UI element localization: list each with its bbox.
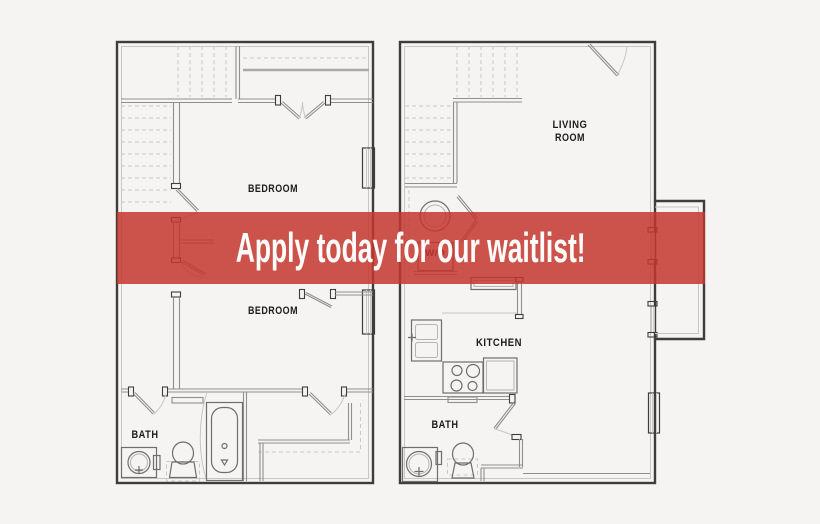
waitlist-cta-text: Apply today for our waitlist! [236, 224, 586, 272]
left-lower-closet [258, 403, 361, 481]
counter-icon [484, 358, 518, 393]
right-bath [403, 402, 651, 482]
label-bedroom-upper: BEDROOM [248, 183, 298, 195]
label-bath-right: BATH [432, 419, 459, 431]
right-staircase [405, 46, 522, 183]
label-living-room-1: LIVING [553, 119, 588, 131]
left-toilet-icon [173, 442, 194, 464]
label-bedroom-lower: BEDROOM [248, 305, 298, 317]
label-kitchen: KITCHEN [476, 337, 522, 349]
floorplan-page: BEDROOM BEDROOM BATH [0, 0, 820, 524]
waitlist-cta-banner[interactable]: Apply today for our waitlist! [117, 212, 705, 284]
right-toilet-icon [453, 443, 474, 465]
label-living-room-2: ROOM [555, 132, 585, 144]
label-bath-left: BATH [132, 429, 159, 441]
left-upper-closet [238, 58, 373, 119]
right-entry-door [584, 38, 629, 76]
left-staircase [121, 46, 240, 202]
